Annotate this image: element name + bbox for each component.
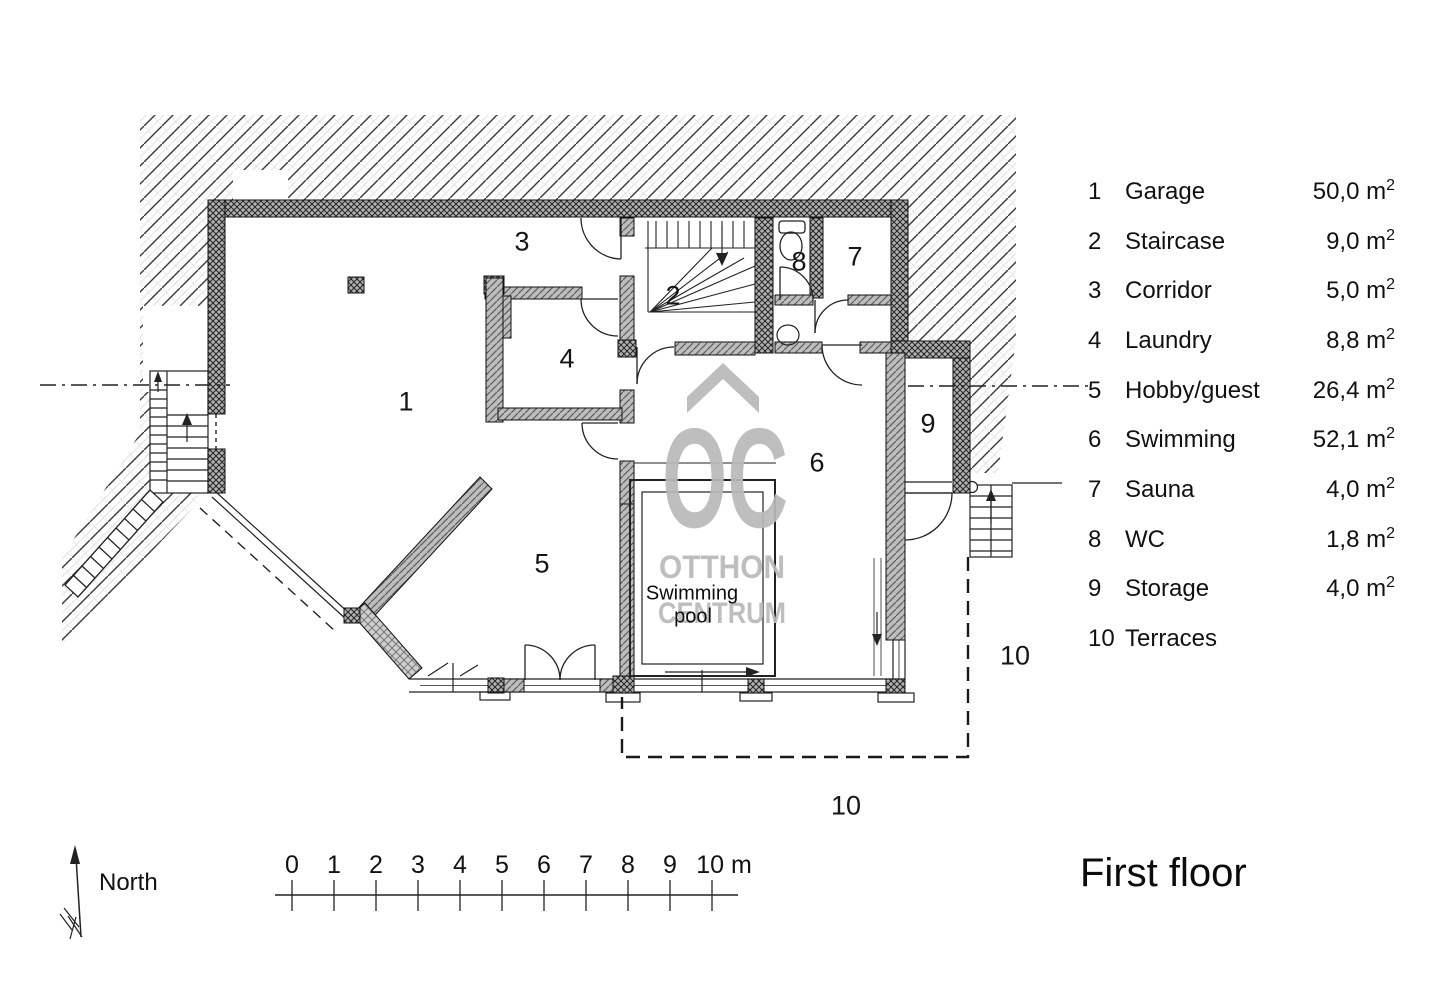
legend-area: 1,8 m2	[1326, 526, 1395, 554]
scale-label-7: 7	[579, 851, 593, 880]
legend-label: Swimming	[1125, 426, 1313, 454]
north-label: North	[99, 869, 158, 897]
floor-plan-page: OC OTTHON CENTRUM 1 2 3 4 5 6 7 8 9 10 1…	[0, 0, 1447, 1001]
legend-num: 7	[1088, 476, 1125, 504]
scale-label-9: 9	[663, 851, 677, 880]
legend-num: 2	[1088, 228, 1125, 256]
legend-row-swimming: 6 Swimming 52,1 m2	[1088, 415, 1395, 465]
floor-title: First floor	[1080, 851, 1247, 896]
scale-label-10m: 10 m	[696, 851, 752, 880]
legend-label: Sauna	[1125, 476, 1326, 504]
legend-area: 26,4 m2	[1313, 377, 1395, 405]
scale-label-6: 6	[537, 851, 551, 880]
legend-label: Corridor	[1125, 277, 1326, 305]
staircase	[645, 221, 755, 312]
north-arrow-icon	[60, 845, 82, 939]
legend-area: 5,0 m2	[1326, 277, 1395, 305]
watermark-line1: OTTHON	[659, 549, 785, 585]
scale-label-8: 8	[621, 851, 635, 880]
room-label-sauna: 7	[847, 242, 862, 273]
room-label-laundry: 4	[559, 344, 574, 375]
legend-row-laundry: 4 Laundry 8,8 m2	[1088, 316, 1395, 366]
scale-label-1: 1	[327, 851, 341, 880]
legend-row-sauna: 7 Sauna 4,0 m2	[1088, 465, 1395, 515]
watermark-monogram: OC	[662, 399, 788, 558]
terrace-label-bottom: 10	[831, 791, 861, 822]
legend: 1 Garage 50,0 m2 2 Staircase 9,0 m2 3 Co…	[1088, 167, 1395, 664]
room-label-storage: 9	[920, 409, 935, 440]
room-label-wc: 8	[791, 247, 806, 278]
room-label-corridor: 3	[514, 227, 529, 258]
legend-label: Staircase	[1125, 228, 1326, 256]
legend-area: 52,1 m2	[1313, 426, 1395, 454]
pool-label-line2: pool	[674, 606, 712, 629]
legend-num: 10	[1088, 625, 1125, 653]
room-label-hobby: 5	[534, 549, 549, 580]
legend-area: 8,8 m2	[1326, 327, 1395, 355]
legend-num: 1	[1088, 178, 1125, 206]
legend-label: Terraces	[1125, 625, 1395, 653]
legend-label: Laundry	[1125, 327, 1326, 355]
legend-row-garage: 1 Garage 50,0 m2	[1088, 167, 1395, 217]
legend-num: 8	[1088, 526, 1125, 554]
scale-bar	[275, 880, 738, 911]
legend-num: 5	[1088, 377, 1125, 405]
room-label-swimming: 6	[809, 448, 824, 479]
legend-row-storage: 9 Storage 4,0 m2	[1088, 565, 1395, 615]
legend-row-staircase: 2 Staircase 9,0 m2	[1088, 217, 1395, 267]
legend-num: 6	[1088, 426, 1125, 454]
legend-area: 50,0 m2	[1313, 178, 1395, 206]
legend-area: 4,0 m2	[1326, 476, 1395, 504]
scale-label-2: 2	[369, 851, 383, 880]
legend-num: 4	[1088, 327, 1125, 355]
pool-label-line1: Swimming	[646, 583, 738, 606]
legend-row-terraces: 10 Terraces	[1088, 614, 1395, 664]
room-label-staircase: 2	[665, 281, 680, 312]
scale-label-3: 3	[411, 851, 425, 880]
legend-row-wc: 8 WC 1,8 m2	[1088, 515, 1395, 565]
exterior-stairs-right	[967, 482, 1063, 558]
scale-label-5: 5	[495, 851, 509, 880]
legend-num: 3	[1088, 277, 1125, 305]
carport-edge	[200, 492, 351, 631]
legend-row-hobby: 5 Hobby/guest 26,4 m2	[1088, 366, 1395, 416]
scale-label-4: 4	[453, 851, 467, 880]
legend-label: Hobby/guest	[1125, 377, 1313, 405]
legend-label: WC	[1125, 526, 1326, 554]
legend-area: 4,0 m2	[1326, 575, 1395, 603]
room-label-garage: 1	[398, 387, 413, 418]
legend-row-corridor: 3 Corridor 5,0 m2	[1088, 266, 1395, 316]
legend-label: Garage	[1125, 178, 1313, 206]
legend-area: 9,0 m2	[1326, 228, 1395, 256]
legend-num: 9	[1088, 575, 1125, 603]
terrace-label-right: 10	[1000, 641, 1030, 672]
scale-label-0: 0	[285, 851, 299, 880]
legend-label: Storage	[1125, 575, 1326, 603]
